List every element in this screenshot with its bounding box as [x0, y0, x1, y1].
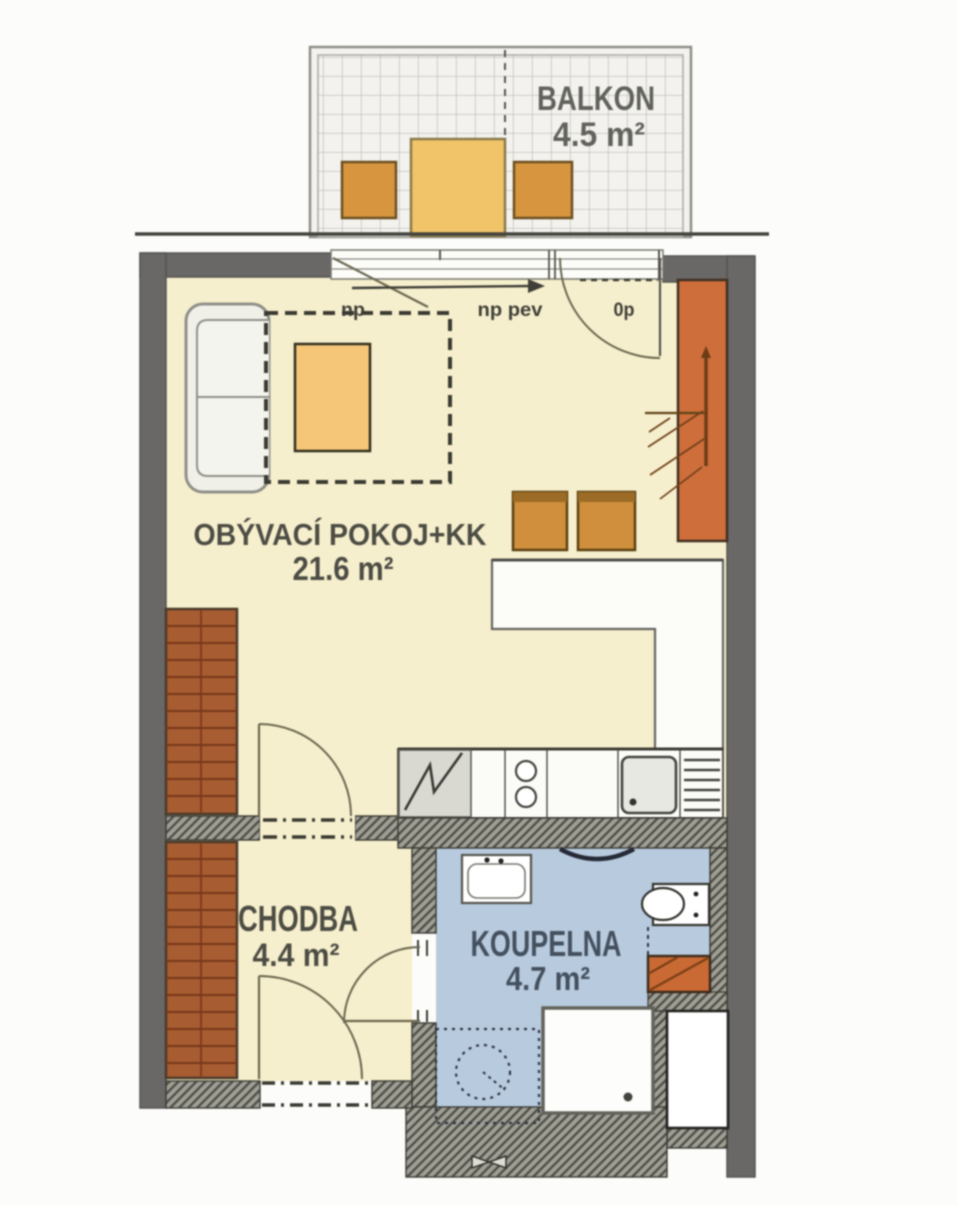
svg-text:4.4 m²: 4.4 m² [253, 937, 340, 973]
svg-text:4.7 m²: 4.7 m² [506, 960, 590, 997]
svg-text:np pev: np pev [478, 300, 543, 321]
svg-text:np: np [341, 300, 365, 321]
svg-text:BALKON: BALKON [537, 80, 655, 118]
svg-text:0p: 0p [614, 300, 635, 321]
svg-text:CHODBA: CHODBA [238, 898, 358, 939]
svg-text:21.6 m²: 21.6 m² [293, 550, 394, 587]
svg-text:4.5 m²: 4.5 m² [553, 116, 645, 154]
svg-text:OBÝVACÍ POKOJ+KK: OBÝVACÍ POKOJ+KK [194, 517, 488, 552]
svg-text:KOUPELNA: KOUPELNA [471, 923, 622, 964]
